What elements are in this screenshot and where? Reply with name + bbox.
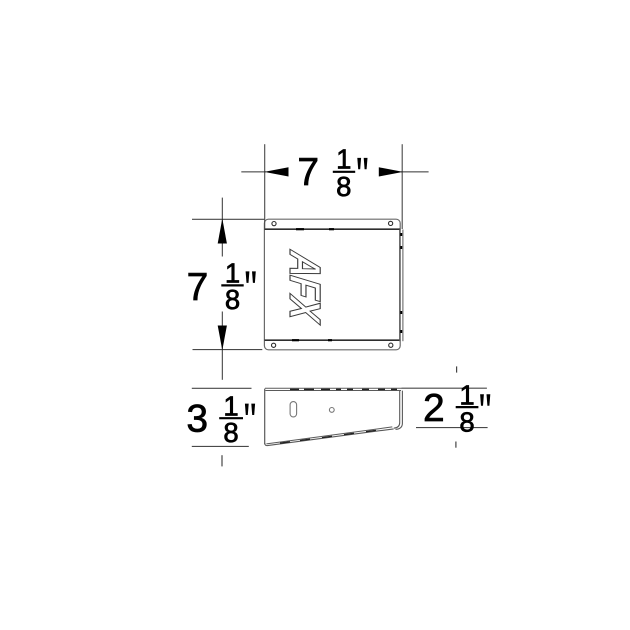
svg-text:8: 8: [225, 284, 240, 315]
svg-text:8: 8: [459, 407, 474, 438]
svg-text:2: 2: [423, 387, 445, 430]
svg-text:8: 8: [336, 171, 351, 202]
svg-text:7: 7: [187, 266, 209, 309]
svg-text:AFX: AFX: [280, 248, 330, 327]
svg-text:3: 3: [186, 398, 208, 441]
svg-text:8: 8: [223, 417, 238, 448]
svg-text:7: 7: [297, 151, 319, 194]
